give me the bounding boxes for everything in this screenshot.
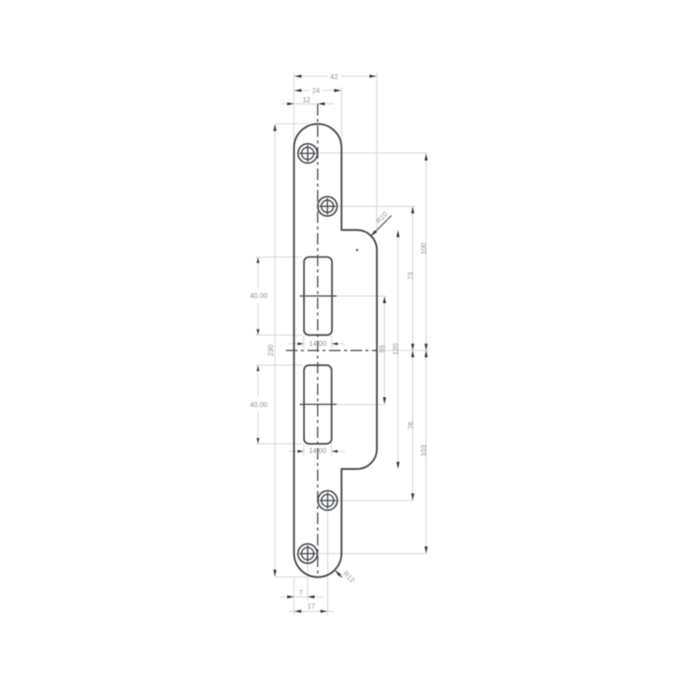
svg-text:40.00: 40.00: [250, 402, 268, 409]
svg-text:R12: R12: [341, 570, 355, 584]
svg-text:17: 17: [307, 603, 315, 610]
svg-text:120: 120: [393, 343, 400, 355]
svg-text:42: 42: [330, 74, 338, 81]
svg-text:7: 7: [299, 590, 303, 597]
svg-text:24: 24: [312, 88, 320, 95]
svg-text:12: 12: [303, 97, 311, 104]
svg-text:76: 76: [408, 422, 415, 430]
svg-text:14.00: 14.00: [309, 448, 327, 455]
svg-text:55: 55: [380, 345, 387, 353]
svg-text:73: 73: [408, 272, 415, 280]
svg-text:100: 100: [421, 243, 428, 255]
svg-text:14.00: 14.00: [309, 341, 327, 348]
svg-text:230: 230: [268, 345, 275, 357]
svg-text:40.00: 40.00: [250, 293, 268, 300]
svg-text:103: 103: [421, 445, 428, 457]
